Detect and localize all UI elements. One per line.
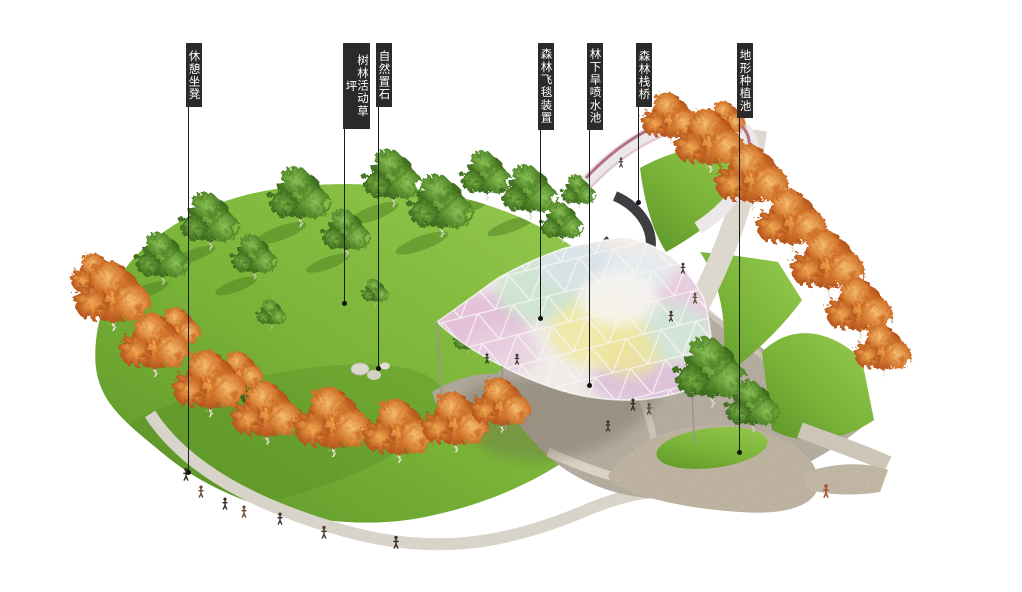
annotation-label: 林下旱喷水池 [587, 43, 603, 130]
person-figure [322, 526, 326, 538]
annotation-label: 地形种植池 [737, 43, 753, 118]
annotation-label: 森林栈桥 [636, 43, 652, 107]
leader-dot [186, 470, 191, 475]
leader-dot [737, 450, 742, 455]
person-figure [824, 484, 828, 497]
leader-dot [587, 383, 592, 388]
person-figure [199, 485, 203, 497]
leader-line [378, 107, 379, 368]
leader-dot [376, 366, 381, 371]
person-figure [242, 505, 246, 517]
annotation-label: 森林飞毯装置 [538, 43, 554, 130]
person-figure [223, 497, 227, 509]
person-figure [278, 512, 282, 524]
leader-line [638, 107, 639, 202]
leader-line [344, 129, 345, 303]
leader-line [589, 130, 590, 385]
leader-line [540, 130, 541, 318]
leader-dot [538, 316, 543, 321]
leader-dot [342, 301, 347, 306]
person-figure [619, 157, 622, 167]
annotation-label: 自然置石 [376, 43, 392, 107]
park-rendering-figure: 休憩坐凳 树林活动草坪 自然置石 森林飞毯装置 林下旱喷水池 森林栈桥 地形种植… [0, 0, 1022, 592]
green-tree [500, 162, 555, 217]
scene-svg [0, 0, 1022, 592]
annotation-label: 休憩坐凳 [186, 43, 202, 107]
leader-dot [636, 200, 641, 205]
leader-line [188, 107, 189, 472]
leader-line [739, 118, 740, 452]
annotation-label: 树林活动草坪 [343, 43, 370, 129]
